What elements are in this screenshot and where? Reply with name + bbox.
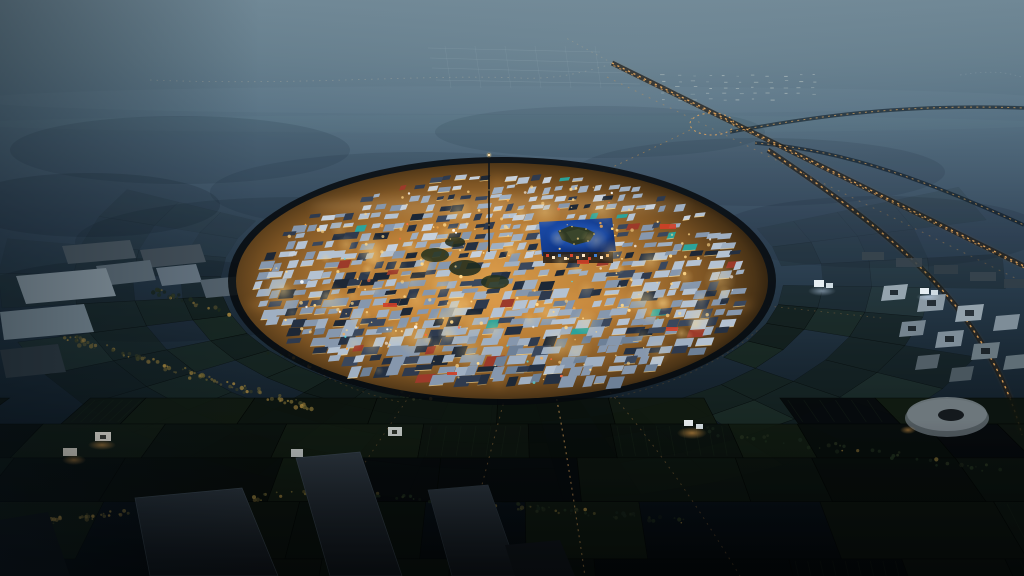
aerial-render-image	[0, 0, 1024, 576]
scene-svg	[0, 0, 1024, 576]
left-vignette	[0, 0, 260, 576]
